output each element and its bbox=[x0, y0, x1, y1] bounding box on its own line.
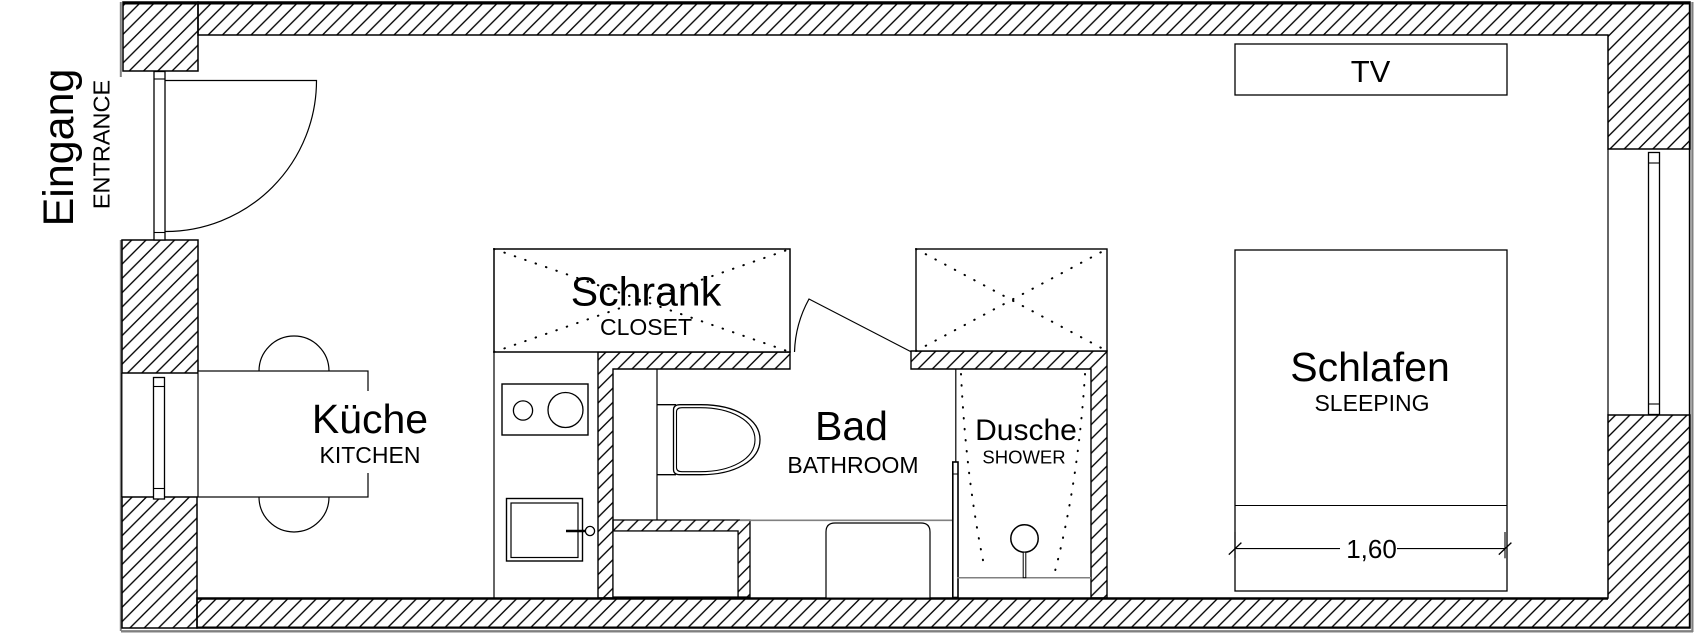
svg-text:Eingang: Eingang bbox=[35, 69, 83, 227]
svg-text:Schrank: Schrank bbox=[571, 269, 722, 315]
svg-text:BATHROOM: BATHROOM bbox=[787, 452, 918, 478]
svg-text:CLOSET: CLOSET bbox=[600, 314, 692, 340]
svg-text:1,60: 1,60 bbox=[1346, 534, 1397, 564]
svg-text:KITCHEN: KITCHEN bbox=[320, 442, 421, 468]
svg-text:Schlafen: Schlafen bbox=[1290, 344, 1450, 390]
svg-text:SHOWER: SHOWER bbox=[982, 447, 1065, 468]
svg-text:ENTRANCE: ENTRANCE bbox=[89, 80, 115, 209]
svg-text:Bad: Bad bbox=[815, 403, 888, 449]
svg-text:Dusche: Dusche bbox=[975, 414, 1077, 447]
svg-text:Küche: Küche bbox=[312, 396, 428, 442]
svg-text:TV: TV bbox=[1351, 54, 1391, 89]
svg-text:SLEEPING: SLEEPING bbox=[1314, 390, 1429, 416]
